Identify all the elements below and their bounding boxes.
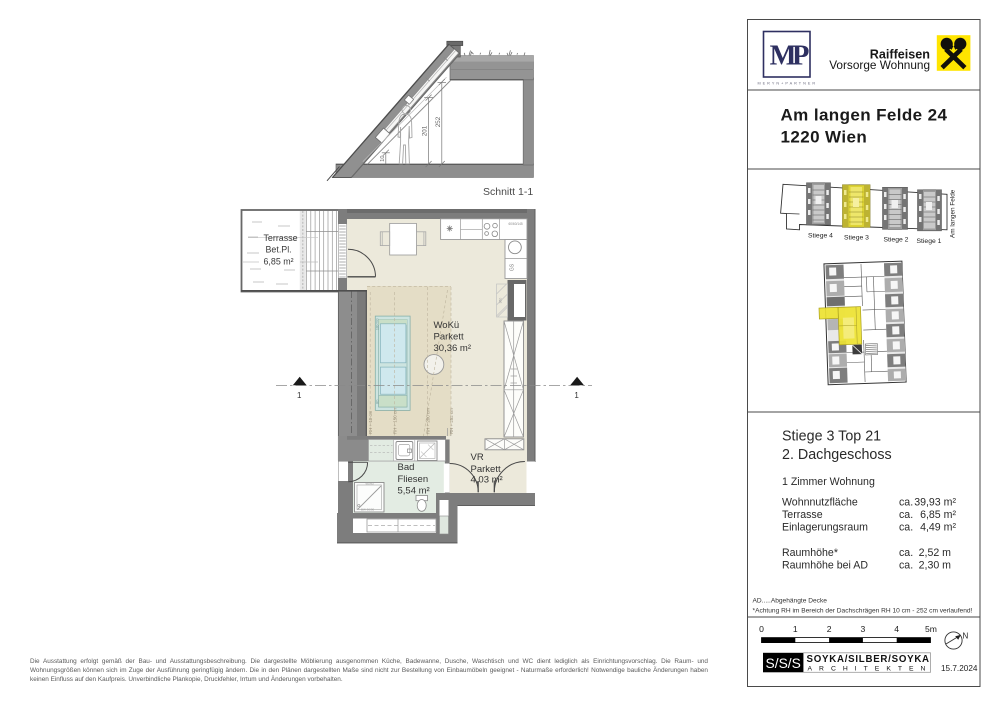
svg-text:90/90: 90/90 <box>366 482 374 486</box>
svg-text:WoKü: WoKü <box>434 320 460 331</box>
svg-text:Stiege 3: Stiege 3 <box>844 235 869 242</box>
svg-text:3: 3 <box>861 624 866 634</box>
svg-text:2,30 m: 2,30 m <box>919 560 952 572</box>
svg-text:4: 4 <box>894 624 899 634</box>
svg-text:ca.: ca. <box>899 497 913 509</box>
svg-text:Schnitt 1-1: Schnitt 1-1 <box>483 186 533 198</box>
svg-text:GS: GS <box>509 263 515 271</box>
svg-text:2,52 m: 2,52 m <box>919 547 952 559</box>
svg-text:Parkett: Parkett <box>471 464 501 475</box>
svg-text:60/60/145: 60/60/145 <box>509 222 523 226</box>
svg-text:Terrasse: Terrasse <box>782 509 823 521</box>
svg-text:Raumhöhe*: Raumhöhe* <box>782 547 838 559</box>
svg-text:5,54 m²: 5,54 m² <box>398 486 430 497</box>
svg-text:*Achtung RH im Bereich der Dac: *Achtung RH im Bereich der Dachschrägen … <box>753 608 973 615</box>
svg-text:15.7.2024: 15.7.2024 <box>941 664 978 673</box>
svg-text:201: 201 <box>422 125 429 136</box>
svg-text:0: 0 <box>759 624 764 634</box>
svg-text:6,85 m²: 6,85 m² <box>264 257 294 267</box>
svg-text:Einlagerungsraum: Einlagerungsraum <box>782 522 868 534</box>
svg-text:S/S/S: S/S/S <box>766 656 801 671</box>
svg-text:6,85 m²: 6,85 m² <box>920 509 956 521</box>
svg-text:ARCHITEKTEN: ARCHITEKTEN <box>808 666 933 673</box>
svg-text:360: 360 <box>499 298 503 304</box>
svg-text:ca.: ca. <box>899 560 913 572</box>
svg-text:Stiege 3 Top 21: Stiege 3 Top 21 <box>782 429 881 445</box>
svg-text:SOYKA/SILBER/SOYKA: SOYKA/SILBER/SOYKA <box>807 654 930 665</box>
svg-text:BW 90/90: BW 90/90 <box>361 508 375 512</box>
svg-text:Am langen Felde: Am langen Felde <box>950 189 957 238</box>
svg-text:RH + 252 cm: RH + 252 cm <box>449 408 454 434</box>
svg-text:30,36 m²: 30,36 m² <box>434 343 472 354</box>
svg-text:RH + 200 cm: RH + 200 cm <box>425 408 430 434</box>
svg-text:Bad: Bad <box>398 462 415 473</box>
svg-text:BD: BD <box>376 399 380 404</box>
svg-text:1: 1 <box>297 391 302 400</box>
svg-text:VR: VR <box>471 452 484 463</box>
svg-text:1 Zimmer Wohnung: 1 Zimmer Wohnung <box>782 476 875 488</box>
svg-text:ca.: ca. <box>899 509 913 521</box>
svg-text:5m: 5m <box>925 624 937 634</box>
svg-text:MERYN+PARTNER: MERYN+PARTNER <box>757 82 817 86</box>
svg-text:10: 10 <box>380 155 386 161</box>
svg-text:MP: MP <box>770 41 809 72</box>
svg-text:Stiege 2: Stiege 2 <box>884 237 909 244</box>
svg-text:4,49 m²: 4,49 m² <box>920 522 956 534</box>
svg-text:AD.....Abgehängte Decke: AD.....Abgehängte Decke <box>753 598 828 605</box>
svg-text:ca.: ca. <box>899 547 913 559</box>
svg-text:1220 Wien: 1220 Wien <box>781 128 868 147</box>
svg-text:1: 1 <box>574 391 579 400</box>
svg-text:RH + 10 cm: RH + 10 cm <box>368 410 373 434</box>
svg-text:Parkett: Parkett <box>434 332 464 343</box>
svg-text:Raumhöhe bei AD: Raumhöhe bei AD <box>782 560 868 572</box>
svg-text:39,93 m²: 39,93 m² <box>914 497 956 509</box>
svg-text:Am langen Felde 24: Am langen Felde 24 <box>781 106 948 125</box>
svg-text:2. Dachgeschoss: 2. Dachgeschoss <box>782 447 892 463</box>
svg-text:Fliesen: Fliesen <box>398 474 429 485</box>
svg-text:Stiege 1: Stiege 1 <box>917 238 942 245</box>
svg-text:ca.: ca. <box>899 522 913 534</box>
svg-text:Stiege 4: Stiege 4 <box>808 233 833 240</box>
svg-text:Wohnnutzfläche: Wohnnutzfläche <box>782 497 858 509</box>
svg-text:Terrasse: Terrasse <box>264 233 298 243</box>
svg-text:252: 252 <box>435 116 442 127</box>
svg-text:1: 1 <box>793 624 798 634</box>
svg-text:180/200: 180/200 <box>376 318 380 330</box>
svg-text:Vorsorge Wohnung: Vorsorge Wohnung <box>829 58 930 72</box>
svg-text:4,03 m²: 4,03 m² <box>471 475 503 486</box>
svg-text:N: N <box>963 632 969 641</box>
svg-text:RH + 150 cm: RH + 150 cm <box>393 408 398 434</box>
svg-text:2: 2 <box>827 624 832 634</box>
svg-text:Bet.Pl.: Bet.Pl. <box>266 245 292 255</box>
